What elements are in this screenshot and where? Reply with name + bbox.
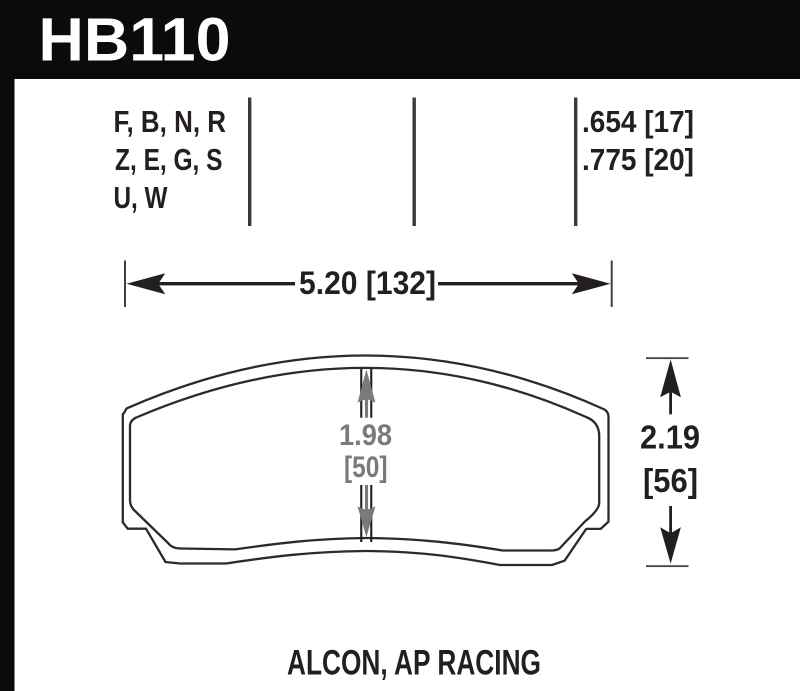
svg-text:ALCON, AP RACING: ALCON, AP RACING xyxy=(287,643,541,683)
svg-text:HB110: HB110 xyxy=(39,5,231,74)
svg-text:U, W: U, W xyxy=(114,180,169,215)
svg-text:F, B, N, R: F, B, N, R xyxy=(114,104,227,139)
svg-text:[50]: [50] xyxy=(344,451,388,484)
svg-text:2.19: 2.19 xyxy=(640,419,700,456)
svg-text:[56]: [56] xyxy=(643,462,698,499)
svg-text:.775 [20]: .775 [20] xyxy=(582,142,694,177)
svg-text:1.98: 1.98 xyxy=(339,419,392,452)
svg-text:5.20 [132]: 5.20 [132] xyxy=(299,265,436,301)
svg-text:.654 [17]: .654 [17] xyxy=(582,104,694,139)
svg-text:Z, E, G, S: Z, E, G, S xyxy=(115,142,223,177)
